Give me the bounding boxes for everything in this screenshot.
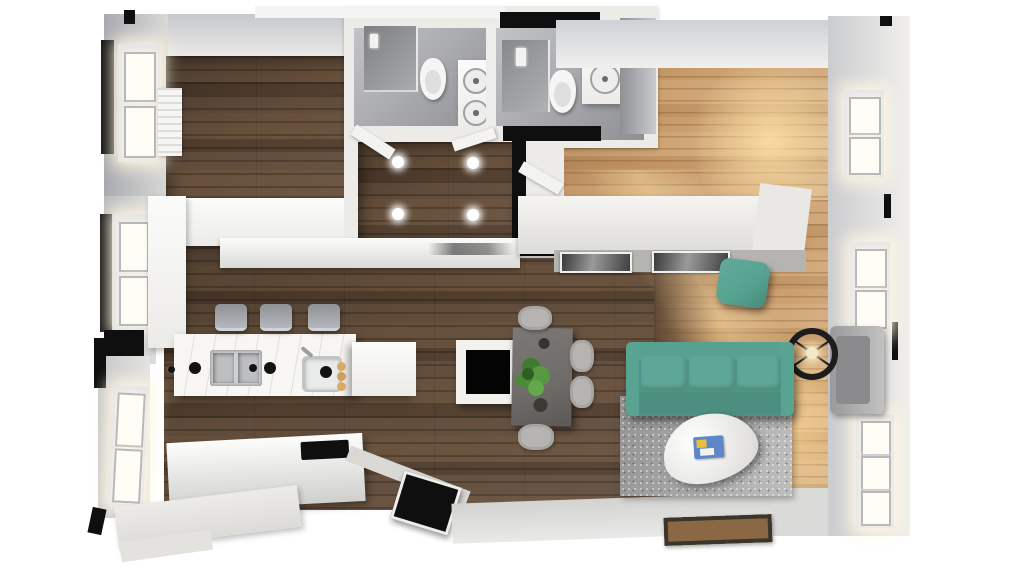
exterior-wall-accent [892, 322, 898, 360]
ceiling-spotlight [467, 209, 479, 221]
roof-strip [255, 6, 505, 18]
sofa-arm [781, 342, 794, 416]
sideboard-corner [752, 183, 812, 257]
cooktop-knob[interactable] [320, 366, 332, 378]
framed-artwork[interactable] [652, 251, 730, 273]
armchair[interactable] [830, 326, 884, 414]
dining-chair[interactable] [518, 424, 554, 450]
living-window-1[interactable] [844, 90, 884, 178]
hallway-floor [358, 142, 514, 246]
cooktop-knob[interactable] [168, 366, 175, 373]
bar-stool[interactable] [215, 304, 247, 331]
kitchen-window[interactable] [114, 214, 152, 330]
kitchen-window-lower[interactable] [107, 385, 149, 507]
sofa-cushion [641, 356, 687, 390]
exterior-wall-accent [124, 10, 135, 24]
living-window-3[interactable] [856, 414, 894, 528]
living-window-2[interactable] [850, 242, 890, 332]
bedroom-floor [166, 56, 362, 212]
bathroom2-toilet[interactable] [549, 70, 576, 113]
shower-head [370, 34, 378, 48]
cooktop-knob[interactable] [249, 364, 257, 372]
exterior-wall-accent [104, 330, 144, 358]
pouf[interactable] [715, 257, 771, 310]
sofa-seat [639, 392, 781, 414]
sofa[interactable] [626, 342, 794, 416]
ceiling-spotlight [392, 156, 404, 168]
exterior-wall-accent [94, 338, 106, 388]
bathroom1-shower[interactable] [364, 26, 418, 92]
doormat [664, 514, 773, 546]
exterior-wall-accent [880, 16, 892, 26]
dining-chair[interactable] [570, 376, 594, 408]
tv-table-black-top [466, 350, 510, 394]
potted-plant[interactable] [514, 354, 552, 398]
pastry-plate [336, 362, 348, 392]
exterior-wall-accent [101, 40, 114, 154]
magazine-tray [693, 435, 724, 459]
floorplan-canvas[interactable] [0, 0, 1024, 576]
decor-bowl [538, 338, 549, 349]
tv-side-table[interactable] [456, 340, 520, 404]
bathroom1-toilet[interactable] [420, 58, 446, 100]
exterior-wall-accent [87, 507, 106, 535]
bar-stool[interactable] [308, 304, 340, 331]
sofa-cushion [689, 356, 735, 390]
column-cabinet[interactable] [148, 196, 186, 348]
bathroom2-shower[interactable] [502, 40, 550, 112]
kitchen-wall-counter[interactable] [220, 238, 520, 268]
dining-chair[interactable] [518, 306, 552, 330]
cooktop [300, 440, 349, 460]
sofa-cushion [737, 356, 781, 390]
decor-bowl [533, 398, 547, 412]
bar-stool[interactable] [260, 304, 292, 331]
framed-artwork[interactable] [560, 252, 632, 273]
bedroom-radiator [158, 88, 182, 156]
shower-head [516, 48, 526, 66]
exterior-wall-accent [100, 214, 112, 332]
ceiling-spotlight [392, 208, 404, 220]
living-ceiling-band [556, 20, 836, 68]
sofa-arm [626, 342, 639, 416]
counter-reflection [428, 243, 514, 255]
cooktop-knob[interactable] [264, 362, 276, 374]
interior-wall-black [503, 126, 601, 141]
dining-chair[interactable] [570, 340, 594, 372]
ceiling-spotlight [467, 157, 479, 169]
bedroom-window[interactable] [118, 44, 160, 162]
cooktop-knob[interactable] [189, 362, 201, 374]
exterior-wall-accent [884, 194, 891, 218]
island-end-cabinet[interactable] [352, 342, 416, 396]
